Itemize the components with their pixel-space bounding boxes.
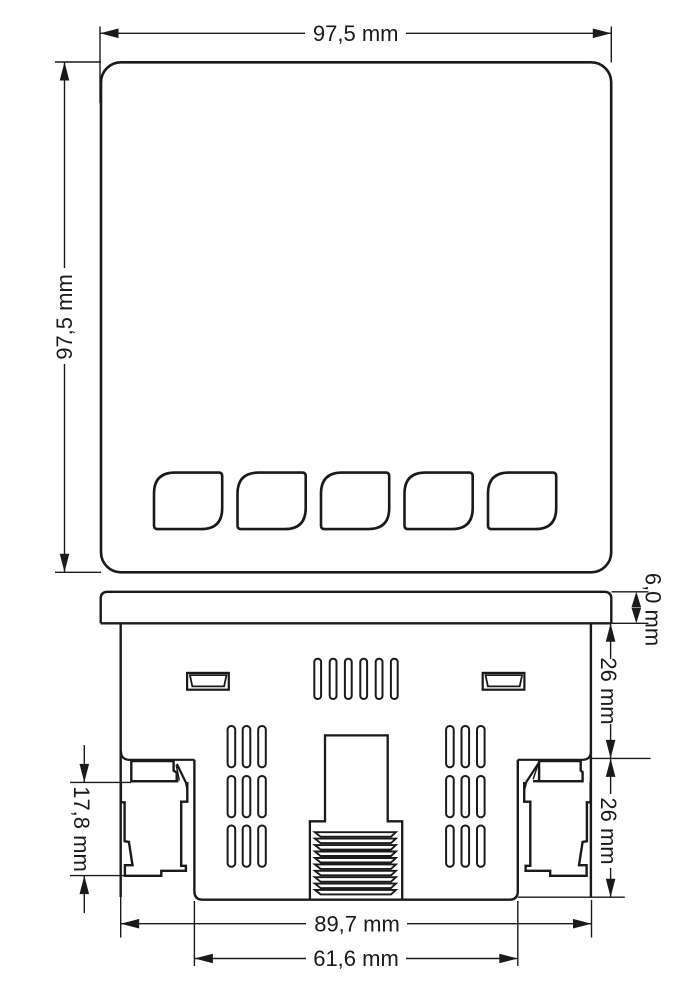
svg-text:61,6 mm: 61,6 mm [313, 946, 399, 971]
svg-text:97,5 mm: 97,5 mm [313, 21, 399, 46]
svg-text:6,0 mm: 6,0 mm [640, 573, 665, 646]
svg-text:26 mm: 26 mm [596, 797, 621, 864]
svg-text:26 mm: 26 mm [596, 657, 621, 724]
svg-text:89,7 mm: 89,7 mm [314, 911, 400, 936]
svg-text:17,8 mm: 17,8 mm [69, 786, 94, 872]
svg-text:97,5 mm: 97,5 mm [52, 274, 77, 360]
